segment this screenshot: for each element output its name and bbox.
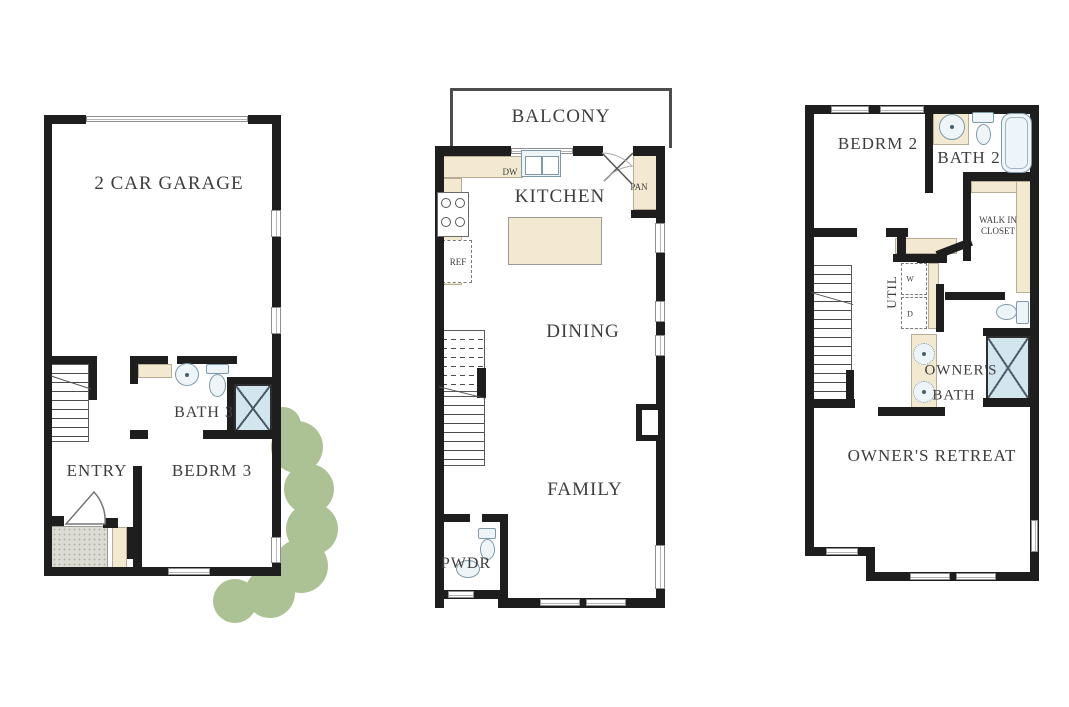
wall xyxy=(805,399,855,408)
toilet-tank-icon xyxy=(972,112,994,123)
toilet-bowl-icon xyxy=(996,304,1017,320)
room-label-walkin-1: WALK IN xyxy=(979,215,1017,225)
wall xyxy=(127,527,135,559)
window xyxy=(540,599,580,606)
wall xyxy=(500,514,508,598)
window xyxy=(826,548,858,555)
window xyxy=(831,106,869,113)
room-label-garage: 2 CAR GARAGE xyxy=(94,173,243,195)
window xyxy=(655,335,665,356)
room-label-bedrm3: BEDRM 3 xyxy=(172,461,252,481)
wall xyxy=(477,368,486,398)
media-niche xyxy=(636,404,658,441)
wall xyxy=(805,228,857,237)
closet-shelf xyxy=(1016,181,1031,293)
balcony-wall xyxy=(669,88,672,148)
window xyxy=(448,591,474,598)
staircase xyxy=(50,364,89,442)
wall xyxy=(925,105,933,193)
window xyxy=(655,223,665,253)
window xyxy=(271,307,281,334)
appliance-label-washer: W xyxy=(906,275,914,284)
floorplan-canvas: 2 CAR GARAGE BATH 3 ENTRY BEDRM 3 BALCON… xyxy=(0,0,1069,707)
entry-door-icon xyxy=(60,488,108,528)
dryer-icon xyxy=(901,297,927,329)
window xyxy=(655,301,665,322)
wall xyxy=(917,254,947,263)
room-label-entry: ENTRY xyxy=(67,461,128,481)
room-label-kitchen: KITCHEN xyxy=(515,186,605,208)
toilet-tank-icon xyxy=(478,528,496,539)
window xyxy=(956,573,996,580)
sink-icon xyxy=(175,363,199,386)
window xyxy=(271,210,281,237)
toilet-bowl-icon xyxy=(976,124,991,145)
wall xyxy=(631,210,665,218)
room-label-bath2: BATH 2 xyxy=(937,148,1000,168)
wall xyxy=(435,514,470,522)
room-label-balcony: BALCONY xyxy=(512,106,611,128)
wall xyxy=(963,172,1030,181)
closet-shelf xyxy=(971,181,1018,193)
wall xyxy=(963,181,971,261)
window xyxy=(655,545,665,589)
kitchen-sink-icon xyxy=(521,150,561,177)
window xyxy=(910,573,950,580)
room-label-bedrm2: BEDRM 2 xyxy=(838,134,918,154)
window xyxy=(586,599,626,606)
entry-closet xyxy=(112,527,127,571)
balcony-wall xyxy=(450,88,453,148)
wall xyxy=(1030,105,1039,581)
wall xyxy=(936,284,944,332)
room-label-walkin-2: CLOSET xyxy=(981,226,1015,236)
wall xyxy=(878,407,945,416)
wall xyxy=(44,567,281,576)
appliance-label-dryer: D xyxy=(907,310,913,319)
wall xyxy=(130,356,138,384)
wall xyxy=(44,115,86,124)
porch xyxy=(46,526,108,573)
staircase-lower xyxy=(437,396,485,466)
wall xyxy=(435,146,511,156)
balcony-wall xyxy=(450,88,672,91)
room-label-dining: DINING xyxy=(546,321,620,343)
room-label-owners-retreat: OWNER'S RETREAT xyxy=(848,446,1017,466)
bush-icon xyxy=(213,579,257,623)
appliance-label-ref: REF xyxy=(450,257,467,267)
sink-icon xyxy=(939,114,965,140)
room-label-bath3: BATH 3 xyxy=(174,404,234,422)
garage-door xyxy=(86,116,248,122)
wall xyxy=(945,292,1005,300)
toilet-tank-icon xyxy=(206,364,229,374)
room-label-family: FAMILY xyxy=(547,479,623,501)
wall xyxy=(44,115,52,575)
room-label-pan: PAN xyxy=(630,182,647,192)
window xyxy=(1031,520,1038,552)
room-label-owners-bath-2: BATH xyxy=(932,388,975,405)
kitchen-island xyxy=(508,217,602,265)
wall xyxy=(89,356,97,400)
room-label-owners-bath-1: OWNER'S xyxy=(924,363,997,380)
toilet-tank-icon xyxy=(1016,301,1029,324)
appliance-label-dw: DW xyxy=(503,167,518,177)
room-label-util: UTIL xyxy=(884,275,900,309)
shower-icon xyxy=(234,384,272,433)
bathtub-icon xyxy=(1001,113,1032,173)
vanity-counter xyxy=(138,364,172,378)
room-label-pwdr: PWDR xyxy=(441,555,491,573)
wall xyxy=(983,398,1030,407)
range-icon xyxy=(437,192,469,237)
wall xyxy=(498,598,665,608)
window xyxy=(880,106,924,113)
wall xyxy=(866,572,1039,581)
toilet-bowl-icon xyxy=(209,374,226,397)
window xyxy=(271,537,281,563)
wall xyxy=(805,105,814,556)
wall xyxy=(203,430,281,439)
wall xyxy=(130,430,148,439)
wall xyxy=(983,328,1030,336)
wall xyxy=(272,115,281,575)
window xyxy=(168,568,210,575)
